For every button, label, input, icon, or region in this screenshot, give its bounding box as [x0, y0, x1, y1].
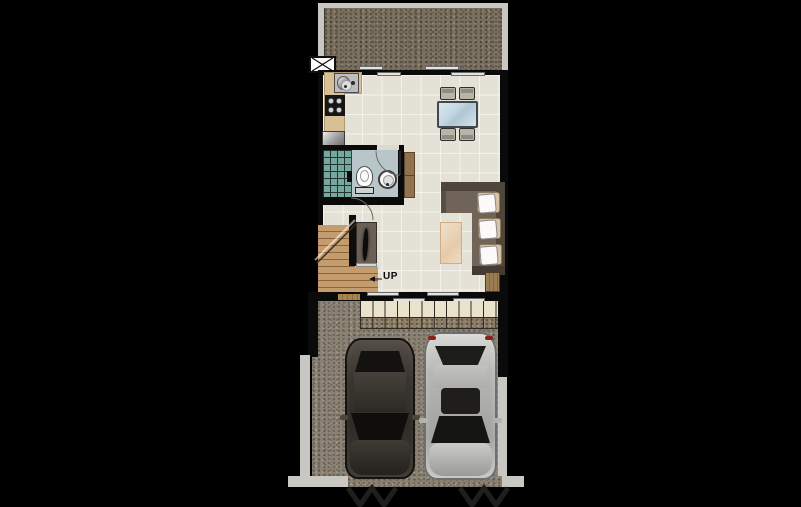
toilet-icon	[356, 166, 373, 187]
car-roof	[354, 372, 406, 412]
car-rear-window	[355, 351, 405, 372]
parked-car-silver	[424, 332, 497, 480]
cabinet-base-edge	[356, 263, 377, 267]
door-pane	[451, 72, 485, 76]
rear-sliding-door-right	[425, 66, 485, 76]
dining-chair	[440, 128, 456, 141]
door-pane	[425, 66, 459, 70]
sink-basin	[337, 76, 350, 90]
pillow-icon	[478, 219, 498, 239]
gate-left-icon	[348, 488, 396, 505]
front-fence-right	[502, 476, 524, 487]
pillow-icon	[477, 193, 497, 213]
left-fence	[300, 355, 310, 476]
bathroom-door-opening	[377, 145, 399, 150]
sofa-cushion	[478, 218, 501, 239]
car-roof	[434, 365, 487, 388]
kitchen-sink	[334, 73, 359, 93]
car-windshield	[351, 413, 409, 440]
area-rug	[440, 222, 462, 264]
gate-right-icon	[460, 488, 508, 505]
right-fence	[498, 377, 507, 476]
car-rear-window	[435, 346, 486, 365]
backyard-fence-border	[318, 3, 508, 74]
right-boundary-wall	[498, 301, 508, 378]
rear-sliding-door-left	[359, 66, 401, 76]
dining-chair	[440, 87, 456, 100]
front-door-threshold	[338, 294, 360, 300]
toilet-tank	[355, 187, 374, 194]
dining-chair	[459, 87, 475, 100]
backyard-ground	[324, 8, 502, 74]
sofa-cushion	[477, 192, 500, 213]
porch-tiles-cream	[360, 301, 507, 318]
stove-cooktop	[325, 95, 345, 116]
bathroom-side-cabinet	[404, 152, 415, 198]
door-pane	[359, 66, 383, 70]
car-taillight	[428, 336, 436, 340]
dining-table	[437, 101, 478, 128]
car-taillight	[485, 336, 493, 340]
staircase-landing	[355, 267, 378, 292]
sofa-cushion	[479, 244, 502, 265]
sink-faucet	[351, 81, 355, 85]
stairs-up-label: UP	[383, 271, 398, 282]
pillow-icon	[479, 245, 499, 265]
washbasin-icon	[378, 170, 397, 189]
car-mirror	[419, 418, 428, 423]
car-mirror	[340, 415, 348, 420]
car-windshield	[431, 416, 490, 443]
dining-chair	[459, 128, 475, 141]
floor-plan-canvas: UP	[0, 0, 801, 507]
window-pane	[367, 292, 399, 296]
car-hood	[429, 443, 492, 476]
parked-car-dark	[345, 338, 415, 479]
shower-mixer-icon	[347, 171, 352, 182]
porch-tiles-brown	[360, 318, 507, 329]
car-hood	[350, 440, 410, 475]
car-mirror	[493, 418, 502, 423]
left-boundary-wall	[308, 292, 318, 357]
stair-partition-wall	[349, 215, 356, 266]
wooden-side-table	[485, 272, 500, 292]
car-sunroof	[441, 388, 480, 414]
sofa-backrest-top	[441, 182, 505, 191]
door-pane	[377, 72, 401, 76]
front-fence-left	[288, 476, 348, 487]
window-pane	[427, 292, 459, 296]
